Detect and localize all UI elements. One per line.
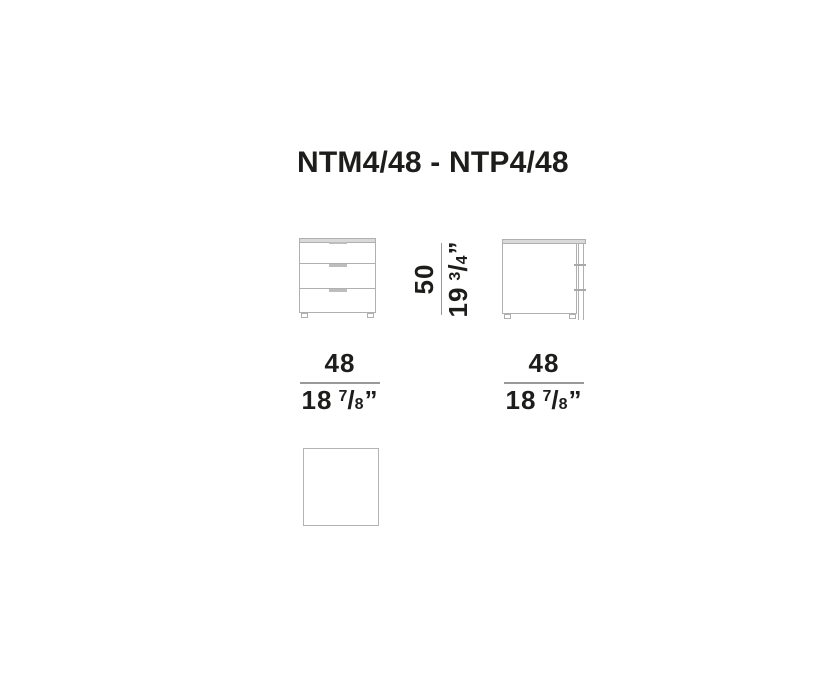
inches-unit: ” xyxy=(443,241,473,255)
front-foot-left xyxy=(301,313,308,319)
front-outline xyxy=(299,238,376,313)
width-cm-value: 48 xyxy=(529,350,560,376)
fraction-numerator: 7 xyxy=(338,388,347,405)
inches-unit: ” xyxy=(364,385,378,415)
side-drawer-front-edge xyxy=(578,244,584,320)
side-top-panel xyxy=(502,239,586,244)
fraction-slash: / xyxy=(347,385,354,415)
inches-whole: 19 xyxy=(443,287,473,318)
dimension-separator-line xyxy=(300,382,380,384)
side-drawer-handle xyxy=(574,289,586,291)
front-foot-right xyxy=(367,313,374,319)
side-foot-right xyxy=(569,314,576,320)
inches-unit: ” xyxy=(568,385,582,415)
fraction-slash: / xyxy=(443,264,473,271)
side-width-dimension: 48 187/8” xyxy=(490,350,598,413)
side-foot-left xyxy=(504,314,511,320)
inches-whole: 18 xyxy=(302,385,333,415)
height-inches-value: 193/4” xyxy=(445,241,471,318)
drawer-handle xyxy=(329,264,347,266)
fraction-denominator: 4 xyxy=(454,256,471,265)
drawer-handle xyxy=(329,289,347,291)
front-view xyxy=(299,238,378,320)
width-inches-value: 187/8” xyxy=(302,387,379,413)
height-dimension: 50 193/4” xyxy=(409,237,473,321)
fraction-slash: / xyxy=(551,385,558,415)
fraction-numerator: 7 xyxy=(542,388,551,405)
inches-whole: 18 xyxy=(506,385,537,415)
side-drawer-handle xyxy=(574,264,586,266)
product-title: NTM4/48 - NTP4/48 xyxy=(297,146,569,179)
diagram-canvas: NTM4/48 - NTP4/48 50 193/4” 48 187/8” 48 xyxy=(0,0,840,679)
width-cm-value: 48 xyxy=(325,350,356,376)
height-cm-value: 50 xyxy=(411,264,437,295)
fraction-denominator: 8 xyxy=(355,396,364,413)
drawer-handle xyxy=(329,242,347,244)
dimension-separator-line xyxy=(504,382,584,384)
front-width-dimension: 48 187/8” xyxy=(286,350,394,413)
side-view xyxy=(502,239,588,321)
fraction-denominator: 8 xyxy=(559,396,568,413)
dimension-separator-line xyxy=(441,243,443,315)
width-inches-value: 187/8” xyxy=(506,387,583,413)
fraction-numerator: 3 xyxy=(447,272,464,281)
side-outline xyxy=(502,243,577,314)
top-view-outline xyxy=(303,448,379,526)
